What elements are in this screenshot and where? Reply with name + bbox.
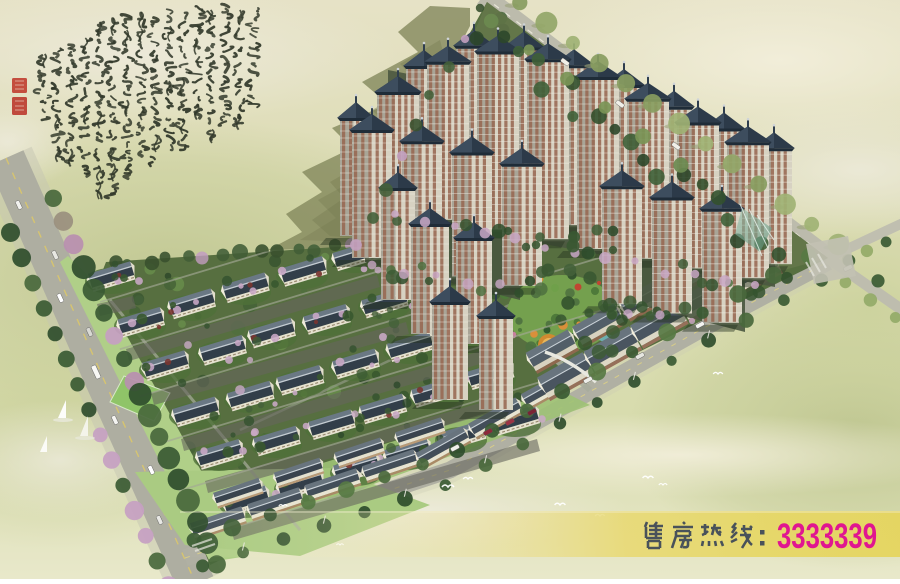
svg-text:3333339: 3333339: [777, 517, 877, 556]
